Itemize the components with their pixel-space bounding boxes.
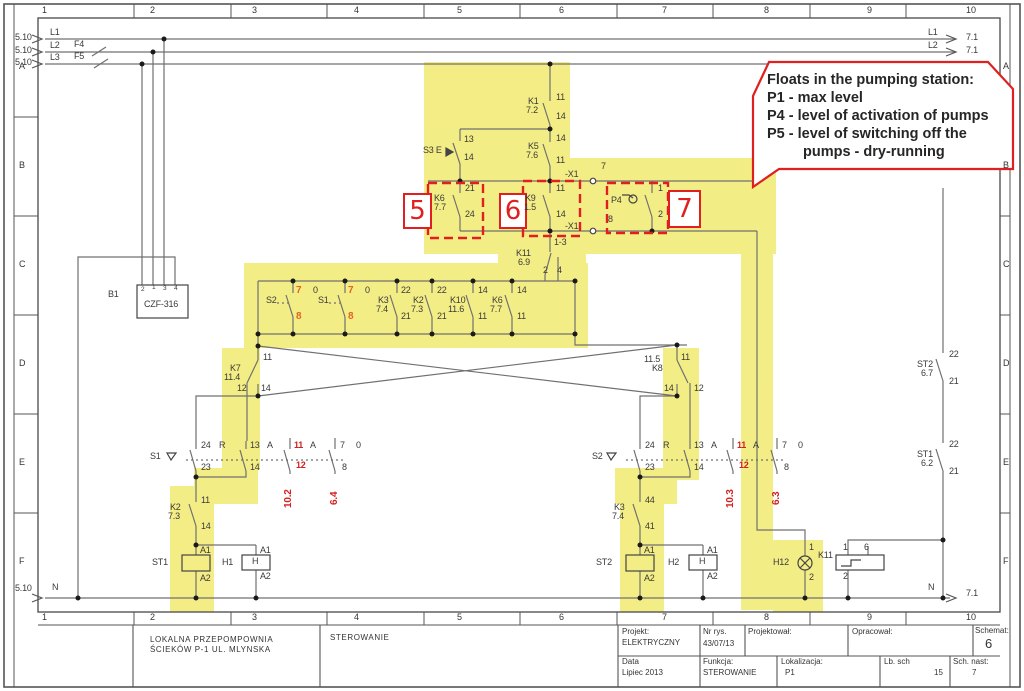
- lokalizacja-value: P1: [785, 669, 795, 677]
- h2-lamp-box: [689, 555, 717, 570]
- sch-nast-label: Sch. nast:: [953, 658, 989, 666]
- h1-lamp-box: [242, 555, 270, 570]
- x1-terminal-icon: [590, 228, 596, 234]
- highlight-regions: [170, 62, 823, 612]
- sch-nast-value: 7: [972, 669, 976, 677]
- schemat-value: 6: [985, 637, 992, 650]
- k11-timer-coil: [836, 555, 884, 570]
- marker-5: 5: [403, 193, 432, 229]
- projektowal-label: Projektował:: [748, 628, 792, 636]
- data-value: Lipiec 2013: [622, 669, 663, 677]
- projekt-label: Projekt:: [622, 628, 649, 636]
- data-label: Data: [622, 658, 639, 666]
- projekt-value: ELEKTRYCZNY: [622, 639, 680, 647]
- project-name-line2: ŚCIEKÓW P-1 UL. MLYNSKA: [150, 646, 271, 654]
- callout-line: P5 - level of switching off the: [767, 125, 1009, 143]
- schemat-label: Schemat:: [975, 627, 1009, 635]
- x1-terminal-icon: [590, 178, 596, 184]
- s1-float-icon: [167, 453, 176, 460]
- lb-sch-label: Lb. sch: [884, 658, 910, 666]
- nr-rys-label: Nr rys.: [703, 628, 727, 636]
- opracowal-label: Opracował:: [852, 628, 892, 636]
- phase-monitor-box: [137, 285, 188, 318]
- lb-sch-value: 15: [934, 669, 943, 677]
- callout-line: pumps - dry-running: [767, 143, 1009, 161]
- funkcja-value: STEROWANIE: [703, 669, 756, 677]
- timer-step-icon: [841, 560, 861, 566]
- marker-7: 7: [668, 190, 701, 228]
- function-cell: STEROWANIE: [330, 634, 389, 642]
- callout: Floats in the pumping station: P1 - max …: [767, 71, 1009, 161]
- funkcja-label: Funkcja:: [703, 658, 733, 666]
- schematic-page: 5 6 7 Floats in the pumping station: P1 …: [0, 0, 1024, 691]
- project-name-line1: LOKALNA PRZEPOMPOWNIA: [150, 636, 273, 644]
- lokalizacja-label: Lokalizacja:: [781, 658, 823, 666]
- marker-6: 6: [499, 193, 527, 229]
- callout-title: Floats in the pumping station:: [767, 71, 1009, 89]
- nr-rys-value: 43/07/13: [703, 640, 734, 648]
- callout-line: P1 - max level: [767, 89, 1009, 107]
- s2-float-icon: [607, 453, 616, 460]
- callout-line: P4 - level of activation of pumps: [767, 107, 1009, 125]
